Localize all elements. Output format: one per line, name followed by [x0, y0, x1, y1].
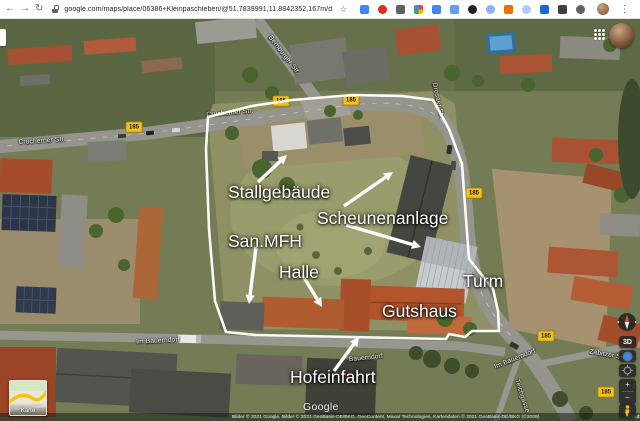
extension-icon-6[interactable]	[450, 5, 459, 14]
reload-button[interactable]: ↻	[35, 4, 43, 14]
zoom-out-button[interactable]: −	[619, 393, 636, 403]
zoom-in-button[interactable]: +	[619, 380, 636, 390]
annotation-turm: Turm	[463, 271, 503, 292]
extension-icon-5[interactable]	[432, 5, 441, 14]
extension-icon-11[interactable]	[540, 5, 549, 14]
crosshair-icon	[622, 365, 633, 376]
inset-label: Karte	[10, 408, 46, 414]
url-input[interactable]: google.com/maps/place/06386+Kleinpaschle…	[64, 6, 332, 13]
my-location-button[interactable]	[619, 350, 636, 362]
forward-button[interactable]: →	[20, 4, 30, 14]
zoom-divider	[622, 391, 633, 392]
annotation-scheunenanlage: Scheunenanlage	[317, 208, 448, 229]
extension-icon-3[interactable]	[396, 5, 405, 14]
extension-icon-1[interactable]	[360, 5, 369, 14]
browser-menu-icon[interactable]: ⋮	[619, 4, 629, 15]
route-badge-185-1: 185	[126, 122, 143, 133]
pegman-icon	[623, 405, 632, 417]
location-dot-icon	[624, 353, 631, 360]
annotation-halle: Halle	[279, 262, 319, 283]
route-badge-185-5: 185	[538, 331, 555, 342]
browser-profile-avatar[interactable]	[597, 3, 609, 15]
back-button[interactable]: ←	[5, 4, 15, 14]
extension-icon-4[interactable]	[414, 5, 423, 14]
account-avatar[interactable]	[609, 23, 634, 48]
search-panel-edge[interactable]	[0, 29, 6, 46]
annotation-stallgeb-ude: Stallgebäude	[228, 182, 330, 203]
extension-icon-8[interactable]	[486, 5, 495, 14]
google-apps-grid-icon[interactable]	[593, 28, 606, 41]
extension-icon-9[interactable]	[504, 5, 513, 14]
zoom-control: + −	[619, 379, 636, 404]
attribution-credits: Bilder © 2021 Google, Bilder © 2021 GeoB…	[232, 415, 539, 420]
browser-window: ← → ↻ google.com/maps/place/06386+Kleinp…	[0, 0, 640, 421]
map-type-toggle[interactable]: Karte	[9, 380, 47, 416]
extension-icon-7[interactable]	[468, 5, 477, 14]
route-badge-185-6: 185	[598, 387, 615, 398]
compass-button[interactable]	[616, 311, 638, 333]
map-canvas[interactable]: Bernburger Str.Crucherner Str.Crucherner…	[0, 19, 640, 421]
extension-icon-12[interactable]	[558, 5, 567, 14]
padlock-icon	[52, 5, 59, 13]
annotation-hofeinfahrt: Hofeinfahrt	[290, 367, 376, 388]
annotation-san-mfh: San.MFH	[228, 231, 302, 252]
route-badge-185-4: 185	[466, 188, 483, 199]
extensions-row	[360, 5, 585, 14]
annotation-gutshaus: Gutshaus	[382, 301, 457, 322]
extension-icon-10[interactable]	[522, 5, 531, 14]
3d-view-button[interactable]: 3D	[619, 336, 636, 348]
google-watermark[interactable]: Google	[303, 401, 339, 413]
attribution-bar: Bilder © 2021 Google, Bilder © 2021 GeoB…	[0, 413, 640, 421]
pegman-button[interactable]	[619, 404, 636, 418]
route-badge-185-2: 185	[273, 96, 290, 107]
target-button[interactable]	[619, 364, 636, 377]
route-badge-185-3: 185	[343, 95, 360, 106]
extension-icon-13[interactable]	[576, 5, 585, 14]
bookmark-star-icon[interactable]: ☆	[339, 4, 347, 15]
extension-icon-2[interactable]	[378, 5, 387, 14]
browser-toolbar: ← → ↻ google.com/maps/place/06386+Kleinp…	[0, 0, 640, 19]
